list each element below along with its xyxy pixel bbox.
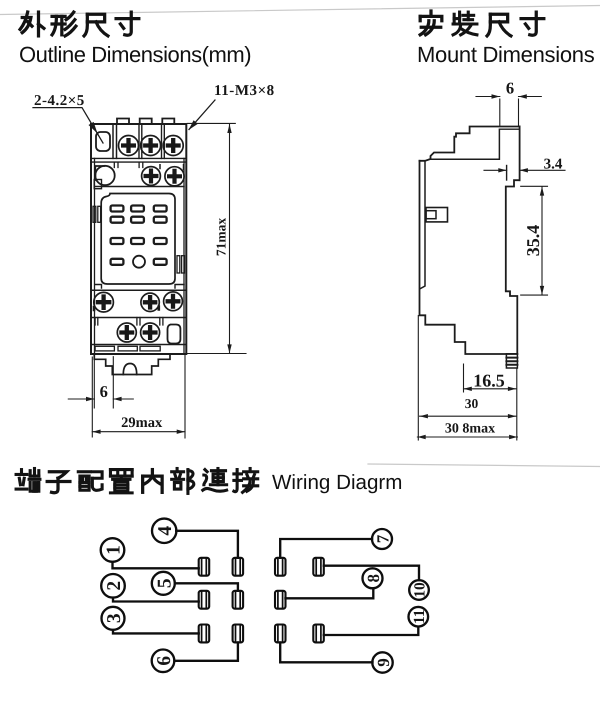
svg-text:6: 6: [506, 79, 514, 98]
svg-text:3: 3: [104, 613, 125, 623]
svg-text:30 8max: 30 8max: [445, 422, 495, 437]
svg-text:Outline Dimensions(mm): Outline Dimensions(mm): [19, 42, 251, 67]
svg-text:10: 10: [412, 582, 429, 598]
svg-text:Mount Dimensions: Mount Dimensions: [417, 42, 595, 67]
svg-text:8: 8: [364, 574, 383, 583]
svg-text:2: 2: [104, 581, 125, 591]
svg-text:4: 4: [155, 526, 176, 536]
svg-text:6: 6: [100, 382, 108, 401]
svg-text:35.4: 35.4: [523, 225, 543, 257]
svg-text:71max: 71max: [214, 218, 229, 256]
svg-text:16.5: 16.5: [473, 370, 505, 390]
svg-text:3.4: 3.4: [544, 157, 563, 173]
svg-text:29max: 29max: [121, 415, 163, 431]
svg-text:9: 9: [374, 658, 393, 667]
svg-text:6: 6: [154, 656, 175, 666]
svg-text:Wiring Diagrm: Wiring Diagrm: [272, 471, 402, 494]
svg-text:1: 1: [104, 545, 125, 555]
svg-text:30: 30: [465, 396, 479, 411]
svg-text:11-M3×8: 11-M3×8: [214, 83, 275, 99]
svg-text:7: 7: [373, 534, 392, 543]
svg-text:5: 5: [154, 578, 175, 588]
svg-text:11: 11: [411, 609, 428, 624]
svg-text:2-4.2×5: 2-4.2×5: [34, 93, 85, 109]
